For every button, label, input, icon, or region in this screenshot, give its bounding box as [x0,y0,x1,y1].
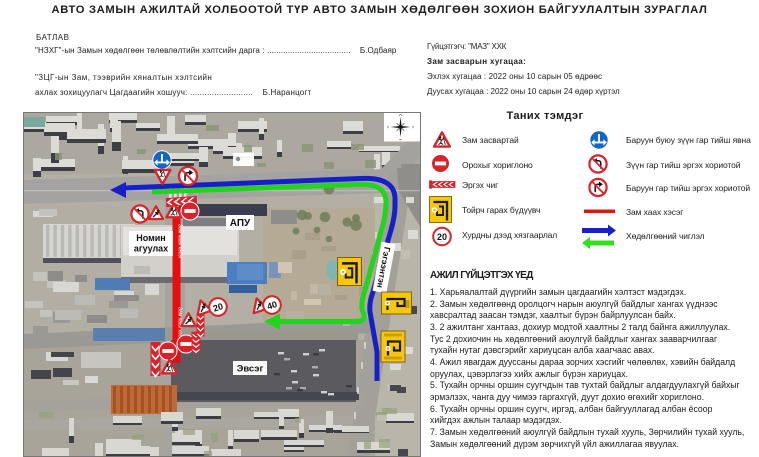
svg-text:Эвсэг: Эвсэг [237,364,264,375]
svg-text:Номин: Номин [136,233,166,243]
svg-text:агуулах: агуулах [134,244,168,254]
svg-text:АПУ: АПУ [230,218,251,229]
svg-text:Зам хаах хэсэг: Зам хаах хэсэг [177,224,183,259]
